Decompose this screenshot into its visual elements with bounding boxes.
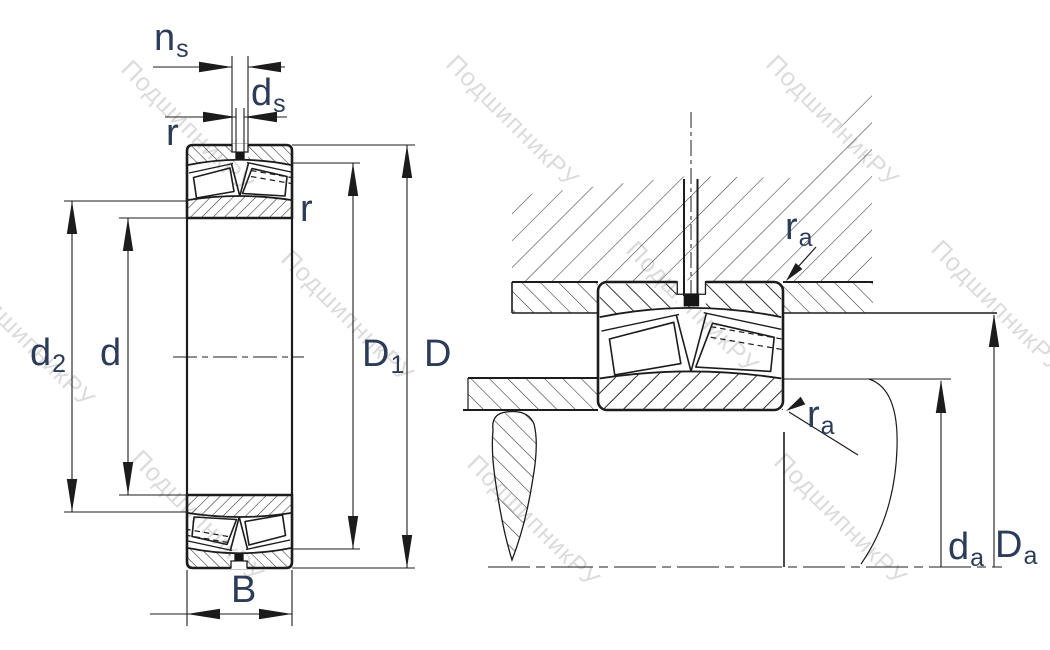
label-da: da [948, 528, 984, 566]
label-d: d [100, 334, 122, 372]
label-ns: ns [154, 19, 189, 57]
label-D: D [424, 335, 452, 373]
label-Da: Da [995, 526, 1037, 564]
label-B: B [231, 571, 257, 609]
label-ra-bottom: ra [807, 396, 835, 434]
label-r-inner: r [300, 190, 314, 228]
label-d2: d2 [30, 334, 66, 372]
drawing-canvas: ПодшипникРУ ПодшипникРУ ПодшипникРУ Подш… [0, 0, 1050, 650]
label-D1: D1 [362, 335, 404, 373]
label-ds: ds [251, 74, 286, 112]
technical-drawing [0, 0, 1050, 650]
label-ra-top: ra [785, 208, 813, 246]
label-r-outer: r [166, 114, 180, 152]
mounting-section-view [463, 92, 1002, 567]
